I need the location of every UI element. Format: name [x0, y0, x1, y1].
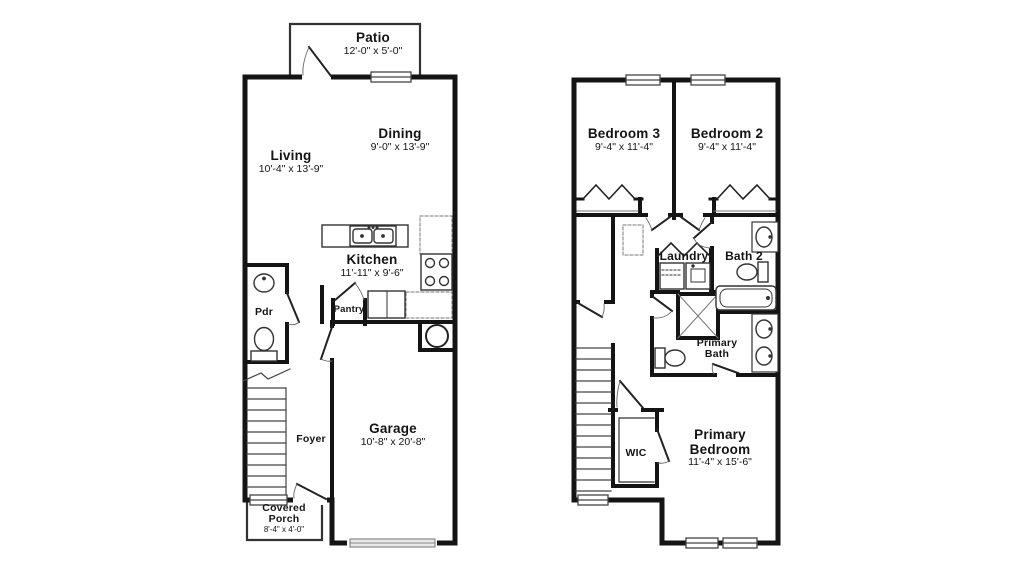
bedroom2-door-swing: [681, 217, 705, 230]
pantry-label: Pantry: [334, 305, 365, 315]
dining-label: Dining 9'-0" x 13'-9": [371, 127, 430, 153]
primary-bath-label: Primary Bath: [697, 338, 738, 361]
window: [686, 538, 718, 548]
covered-porch-label: Covered Porch 8'-4" x 4'-0": [262, 503, 305, 534]
hall-door-swing: [617, 381, 643, 408]
powder-toilet: [251, 328, 277, 362]
primary-vanity: [752, 314, 778, 372]
bathtub: [716, 286, 776, 310]
wic-label: WIC: [625, 448, 646, 459]
pdr-label: Pdr: [255, 307, 273, 318]
primary-toilet: [655, 348, 685, 368]
kitchen-island: [322, 225, 408, 247]
primary-bedroom-door-swing: [712, 364, 738, 374]
bedroom2-label: Bedroom 2 9'-4" x 11'-4": [691, 127, 763, 153]
water-heater: [426, 325, 448, 347]
laundry-label: Laundry: [660, 250, 709, 263]
refrigerator: [368, 291, 405, 318]
foyer-label: Foyer: [296, 434, 326, 445]
bath2-label: Bath 2: [725, 250, 763, 263]
window: [578, 495, 608, 505]
window: [723, 538, 757, 548]
bath2-toilet: [737, 262, 768, 282]
window: [626, 75, 660, 85]
attic-access: [623, 225, 643, 255]
bedroom3-door-swing: [646, 217, 670, 230]
floor-plan-page: Patio 12'-0" x 5'-0" Living 10'-4" x 13'…: [0, 0, 1024, 576]
window: [371, 72, 411, 82]
stairs-second-floor: [576, 348, 611, 491]
pantry-door-swing: [334, 283, 364, 301]
powder-door-swing: [287, 293, 299, 325]
kitchen-label: Kitchen 11'-11" x 9'-6": [340, 253, 403, 279]
dryer: [686, 263, 710, 289]
primary-bedroom-label: Primary Bedroom 11'-4" x 15'-6": [688, 428, 752, 468]
bath2-vanity: [752, 222, 778, 252]
shower: [678, 294, 718, 338]
stair-break-line: [243, 369, 290, 381]
washer: [660, 263, 684, 289]
patio-label: Patio 12'-0" x 5'-0": [344, 31, 403, 57]
garage-label: Garage 10'-8" x 20'-8": [361, 422, 426, 448]
floor-plan-drawing: [0, 0, 1024, 576]
wic-door-swing: [657, 429, 669, 463]
bedroom2-closet-bifold: [717, 185, 770, 199]
living-label: Living 10'-4" x 13'-9": [259, 149, 324, 175]
bedroom3-label: Bedroom 3 9'-4" x 11'-4": [588, 127, 660, 153]
stove: [421, 254, 452, 290]
linen-door-swing: [578, 303, 604, 317]
primary-bath-door-swing: [652, 296, 672, 318]
garage-door: [350, 539, 435, 547]
garage-entry-door-swing: [321, 327, 332, 361]
window: [691, 75, 725, 85]
bedroom3-closet-bifold: [583, 185, 635, 199]
first-floor-plan: [243, 24, 455, 548]
powder-sink: [254, 274, 274, 292]
stairs-first-floor: [243, 369, 290, 497]
